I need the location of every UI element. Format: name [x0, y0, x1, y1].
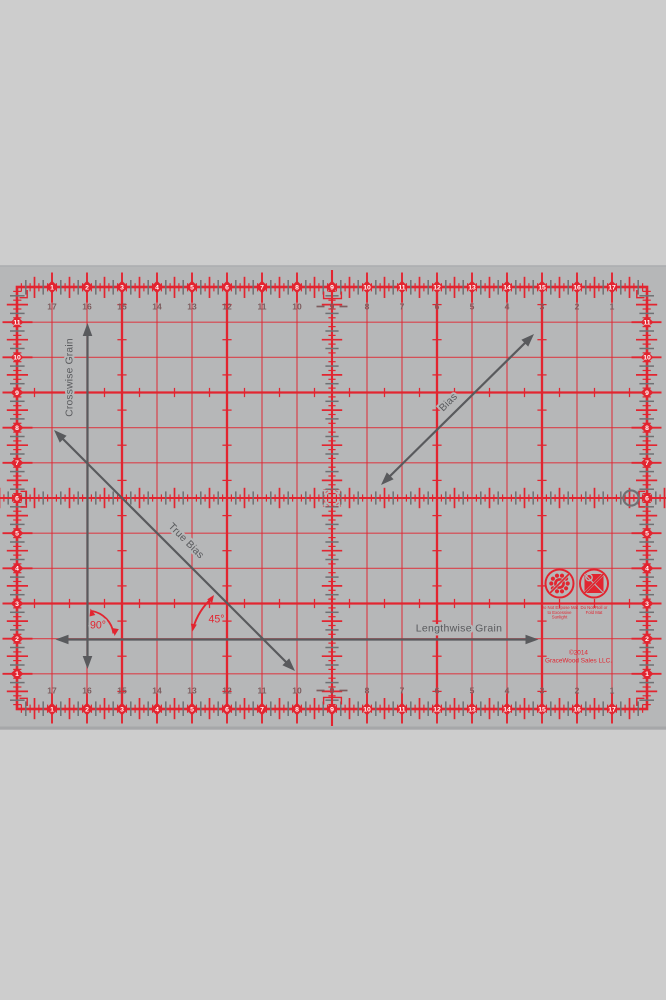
svg-text:10: 10 [13, 355, 21, 362]
svg-text:9: 9 [330, 706, 334, 713]
svg-text:4: 4 [645, 566, 649, 573]
svg-text:2: 2 [575, 686, 580, 696]
svg-text:8: 8 [15, 425, 19, 432]
svg-text:5: 5 [15, 531, 19, 538]
svg-text:4: 4 [155, 706, 159, 713]
svg-text:3: 3 [15, 601, 19, 608]
svg-text:3: 3 [120, 706, 124, 713]
svg-text:GraceWood Sales LLC.: GraceWood Sales LLC. [545, 658, 612, 665]
svg-text:5: 5 [190, 706, 194, 713]
svg-text:8: 8 [295, 284, 299, 291]
svg-text:45°: 45° [208, 614, 224, 626]
svg-text:©2014: ©2014 [569, 649, 588, 657]
svg-text:12: 12 [222, 686, 232, 696]
svg-text:11: 11 [643, 320, 650, 327]
svg-text:7: 7 [400, 302, 405, 312]
svg-text:14: 14 [152, 686, 162, 696]
svg-text:17: 17 [608, 284, 616, 291]
svg-text:Lengthwise Grain: Lengthwise Grain [416, 623, 503, 635]
svg-text:1: 1 [50, 284, 54, 291]
svg-text:15: 15 [117, 302, 127, 312]
svg-text:5: 5 [470, 686, 475, 696]
svg-text:11: 11 [258, 302, 267, 312]
svg-text:13: 13 [468, 284, 476, 291]
svg-text:4: 4 [155, 284, 159, 291]
svg-text:6: 6 [435, 302, 440, 312]
svg-text:16: 16 [573, 706, 581, 713]
svg-text:2: 2 [575, 302, 580, 312]
svg-text:7: 7 [260, 706, 264, 713]
svg-text:13: 13 [187, 686, 197, 696]
svg-text:17: 17 [47, 302, 57, 312]
svg-text:8: 8 [645, 425, 649, 432]
svg-text:6: 6 [435, 686, 440, 696]
svg-text:1: 1 [610, 302, 615, 312]
svg-text:13: 13 [187, 302, 197, 312]
svg-text:6: 6 [225, 284, 229, 291]
svg-text:10: 10 [292, 686, 302, 696]
svg-text:Sunlight: Sunlight [552, 615, 568, 620]
svg-text:1: 1 [50, 706, 54, 713]
svg-text:8: 8 [295, 706, 299, 713]
svg-text:6: 6 [645, 495, 649, 502]
svg-text:7: 7 [400, 686, 405, 696]
svg-text:3: 3 [540, 302, 545, 312]
svg-text:10: 10 [363, 284, 371, 291]
svg-text:1: 1 [645, 671, 649, 678]
svg-text:10: 10 [363, 706, 371, 713]
svg-text:14: 14 [503, 706, 511, 713]
svg-text:9: 9 [330, 686, 335, 696]
svg-text:2: 2 [85, 706, 89, 713]
svg-text:8: 8 [365, 686, 370, 696]
svg-text:16: 16 [573, 284, 581, 291]
svg-text:14: 14 [503, 284, 511, 291]
svg-text:5: 5 [190, 284, 194, 291]
svg-text:5: 5 [470, 302, 475, 312]
svg-text:Fold Mat: Fold Mat [586, 610, 604, 615]
svg-text:5: 5 [645, 531, 649, 538]
svg-text:7: 7 [260, 284, 264, 291]
svg-text:4: 4 [505, 302, 510, 312]
svg-text:11: 11 [13, 320, 20, 327]
svg-text:90°: 90° [90, 620, 106, 632]
svg-text:15: 15 [117, 686, 127, 696]
svg-text:12: 12 [433, 706, 441, 713]
svg-text:3: 3 [120, 284, 124, 291]
svg-text:3: 3 [540, 686, 545, 696]
svg-text:1: 1 [610, 686, 615, 696]
svg-text:6: 6 [15, 495, 19, 502]
svg-text:9: 9 [330, 302, 335, 312]
svg-text:9: 9 [15, 390, 19, 397]
svg-text:12: 12 [433, 284, 441, 291]
svg-text:7: 7 [15, 460, 19, 467]
svg-text:9: 9 [330, 284, 334, 291]
svg-text:Crosswise Grain: Crosswise Grain [65, 338, 76, 417]
svg-text:9: 9 [645, 390, 649, 397]
svg-text:11: 11 [258, 686, 267, 696]
svg-text:11: 11 [398, 284, 405, 291]
svg-text:7: 7 [645, 460, 649, 467]
svg-text:2: 2 [645, 636, 649, 643]
svg-text:4: 4 [505, 686, 510, 696]
svg-text:12: 12 [222, 302, 232, 312]
svg-text:11: 11 [398, 706, 405, 713]
svg-text:10: 10 [292, 302, 302, 312]
svg-text:14: 14 [152, 302, 162, 312]
svg-text:2: 2 [15, 636, 19, 643]
svg-text:13: 13 [468, 706, 476, 713]
svg-text:6: 6 [225, 706, 229, 713]
svg-text:17: 17 [47, 686, 57, 696]
svg-text:8: 8 [365, 302, 370, 312]
svg-text:16: 16 [82, 302, 92, 312]
svg-text:1: 1 [15, 671, 19, 678]
svg-text:15: 15 [538, 706, 546, 713]
svg-text:17: 17 [608, 706, 616, 713]
svg-text:3: 3 [645, 601, 649, 608]
svg-text:15: 15 [538, 284, 546, 291]
svg-text:4: 4 [15, 566, 19, 573]
svg-text:2: 2 [85, 284, 89, 291]
svg-text:16: 16 [82, 686, 92, 696]
svg-text:10: 10 [643, 355, 651, 362]
